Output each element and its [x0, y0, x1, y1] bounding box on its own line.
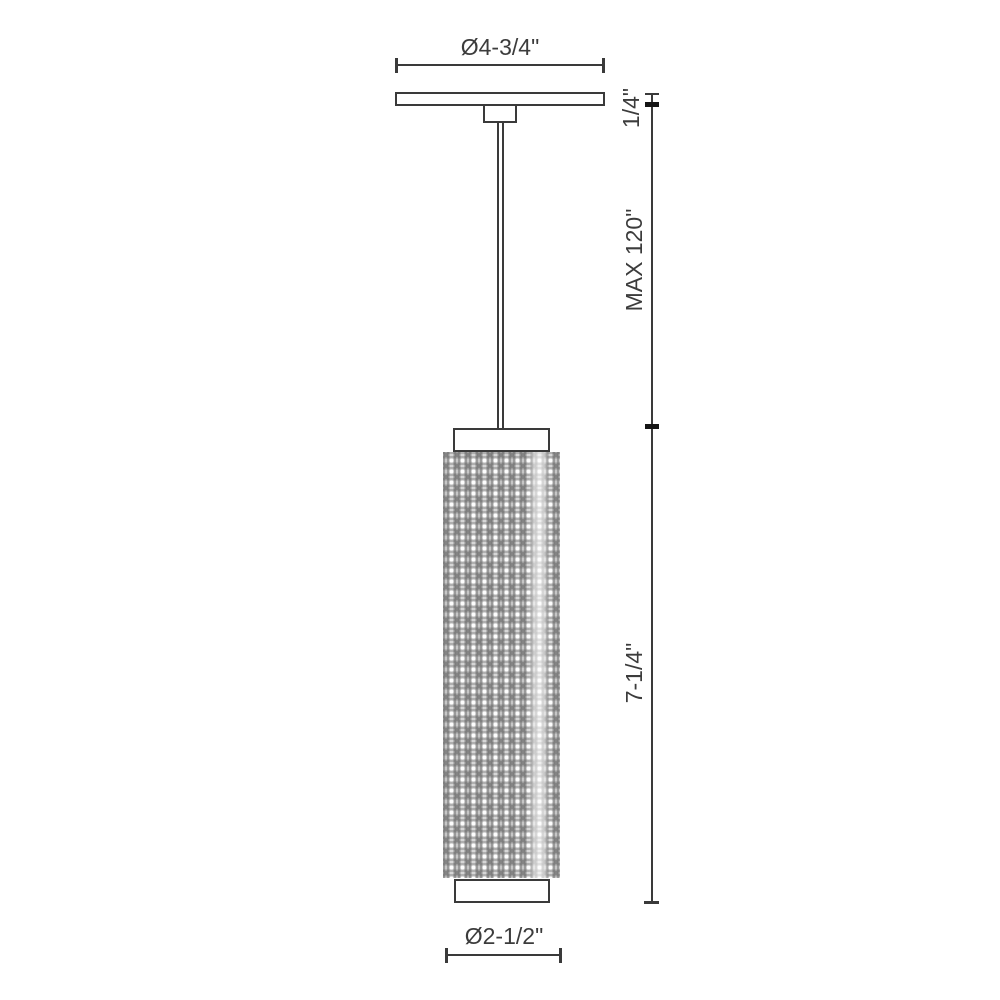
canopy-diameter-label: Ø4-3/4": [400, 34, 600, 60]
fixture-height-label: 7-1/4": [621, 618, 645, 728]
pendant-light-dimension-diagram: Ø4-3/4" 1/4" MAX 120" 7-1/4" Ø2-1/2": [0, 0, 1000, 1000]
shade-diameter-label: Ø2-1/2": [404, 923, 604, 949]
canopy-diameter-dimension-line: [396, 64, 605, 66]
max-suspension-label: MAX 120": [621, 190, 645, 330]
shade-diameter-dimension-line: [446, 954, 561, 956]
shade-diameter-right-tick: [559, 948, 562, 963]
canopy-diameter-left-tick: [395, 58, 398, 73]
shade-holder: [453, 428, 550, 452]
right-dimension-line: [651, 94, 653, 903]
bottom-cap: [454, 879, 550, 903]
canopy-stem-block: [483, 104, 517, 123]
right-dim-bottom-tick: [644, 901, 659, 904]
shade-top-tick: [645, 424, 659, 429]
canopy-diameter-right-tick: [602, 58, 605, 73]
suspension-rod: [497, 123, 504, 429]
canopy-bottom-tick: [645, 102, 659, 107]
right-dim-top-tick: [645, 93, 659, 95]
woven-shade: [443, 452, 560, 878]
shade-diameter-left-tick: [445, 948, 448, 963]
canopy-height-label: 1/4": [618, 73, 642, 143]
